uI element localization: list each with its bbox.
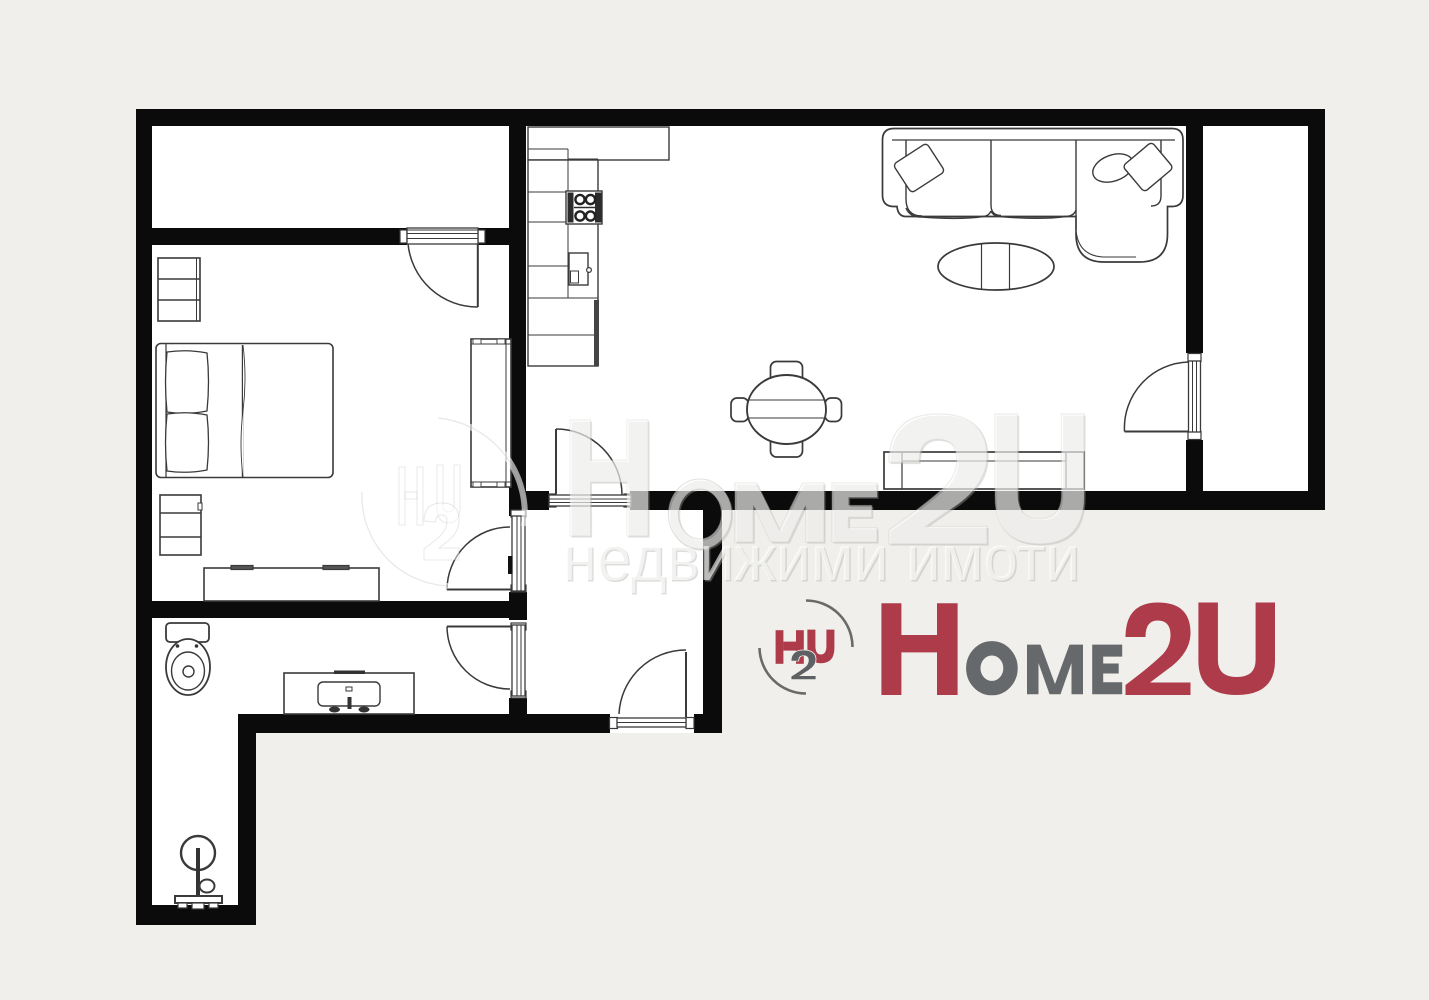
svg-text:недвижими имоти: недвижими имоти <box>562 522 1080 594</box>
